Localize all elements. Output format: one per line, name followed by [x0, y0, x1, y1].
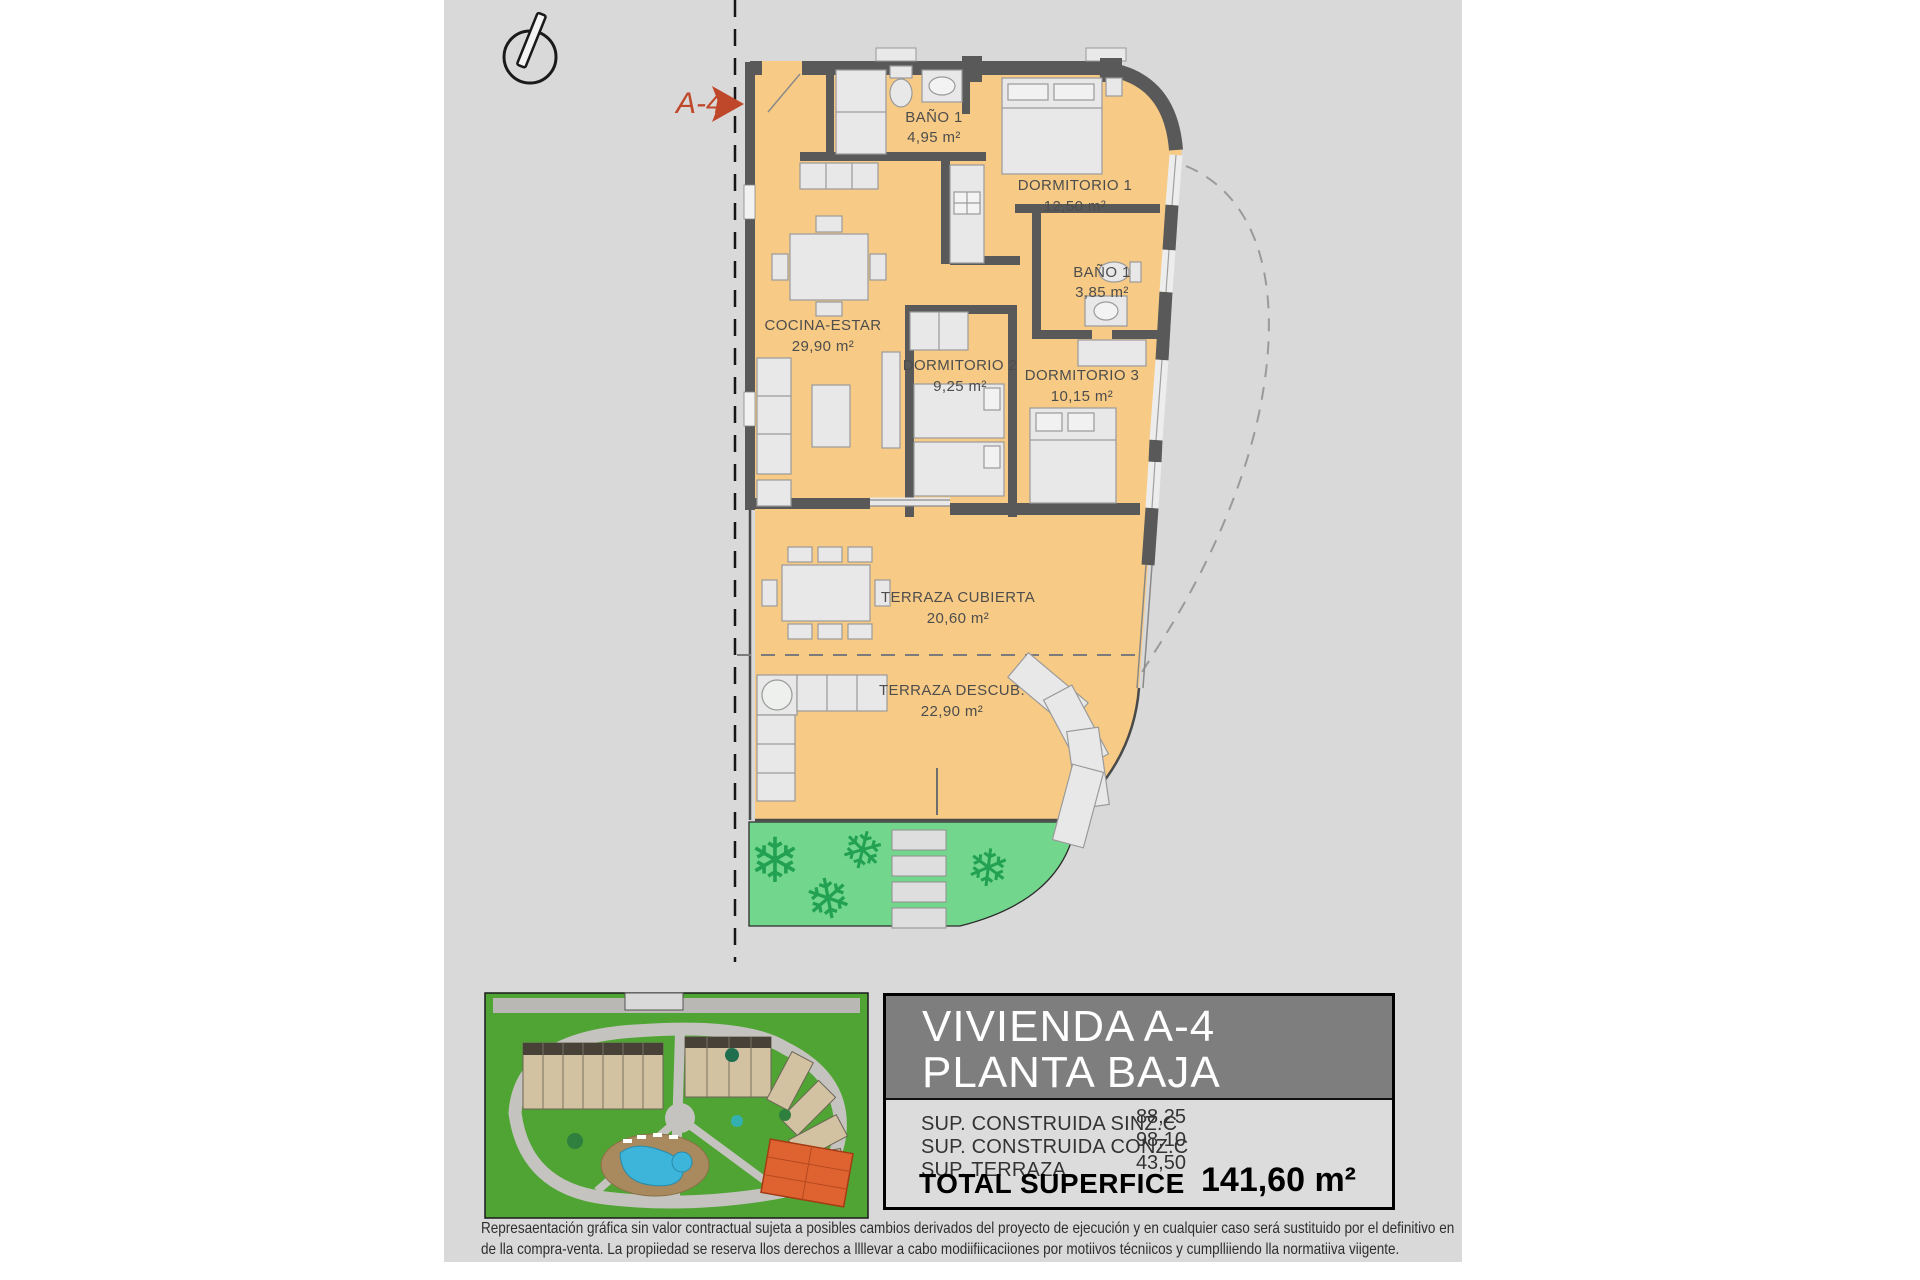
disclaimer-line1: Represaentación gráfica sin valor contra…	[481, 1218, 1459, 1239]
room-area: 9,25 m²	[933, 378, 987, 395]
north-compass-icon	[504, 13, 556, 83]
room-label: BAÑO 1	[905, 109, 962, 126]
wardrobe	[1078, 340, 1146, 366]
sofa	[757, 358, 791, 474]
unit-info-panel: VIVIENDA A-4 PLANTA BAJA SUP. CONSTRUIDA…	[883, 993, 1395, 1210]
armchair	[757, 480, 791, 506]
room-label: DORMITORIO 2	[903, 357, 1018, 374]
sup-row-value: 88,25	[1114, 1106, 1186, 1129]
unit-marker: A-4	[674, 86, 744, 122]
room-area: 3,85 m²	[1075, 284, 1129, 301]
garden-step	[892, 830, 946, 850]
room-area: 22,90 m²	[921, 703, 983, 720]
garden: ❄ ❄ ❄ ❄	[749, 818, 1076, 934]
closet	[800, 163, 878, 189]
room-area: 20,60 m²	[927, 610, 989, 627]
outdoor-sofa	[797, 675, 887, 711]
coffee-table	[812, 385, 850, 447]
room-label: BAÑO 1	[1073, 264, 1130, 281]
room-label: DORMITORIO 1	[1018, 177, 1133, 194]
terrace-table	[782, 565, 870, 621]
outdoor-sofa	[757, 715, 795, 801]
unit-title-line1: VIVIENDA A-4	[922, 1004, 1392, 1050]
legal-disclaimer: Represaentación gráfica sin valor contra…	[481, 1218, 1459, 1260]
dining-table	[790, 234, 868, 300]
garden-step	[892, 908, 946, 928]
sup-row-value: 98,10	[1114, 1129, 1186, 1152]
tv-sideboard	[882, 352, 900, 448]
site-plan-photo	[485, 993, 868, 1218]
room-area: 12,50 m²	[1044, 198, 1106, 215]
unit-info-body: SUP. CONSTRUIDA SINZ.C SUP. CONSTRUIDA C…	[886, 1100, 1392, 1206]
total-surface-label: TOTAL SUPERFICE	[919, 1168, 1185, 1200]
nightstand	[1106, 78, 1122, 96]
unit-title-line2: PLANTA BAJA	[922, 1050, 1392, 1096]
toilet	[890, 66, 912, 78]
total-surface-value: 141,60 m²	[1201, 1161, 1356, 1200]
unit-info-header: VIVIENDA A-4 PLANTA BAJA	[886, 996, 1392, 1100]
room-label: TERRAZA DESCUB.	[879, 682, 1025, 699]
plant-icon: ❄	[749, 827, 801, 896]
room-label: TERRAZA CUBIERTA	[881, 589, 1035, 606]
room-area: 29,90 m²	[792, 338, 854, 355]
garden-step	[892, 856, 946, 876]
disclaimer-line2: de lla compra-venta. La propiiedad se re…	[481, 1239, 1459, 1260]
sliding-door	[870, 500, 950, 506]
room-area: 10,15 m²	[1051, 388, 1113, 405]
room-label: DORMITORIO 3	[1025, 367, 1140, 384]
room-area: 4,95 m²	[907, 129, 961, 146]
garden-step	[892, 882, 946, 902]
plant-icon: ❄	[963, 838, 1013, 901]
room-label: COCINA-ESTAR	[764, 317, 881, 334]
